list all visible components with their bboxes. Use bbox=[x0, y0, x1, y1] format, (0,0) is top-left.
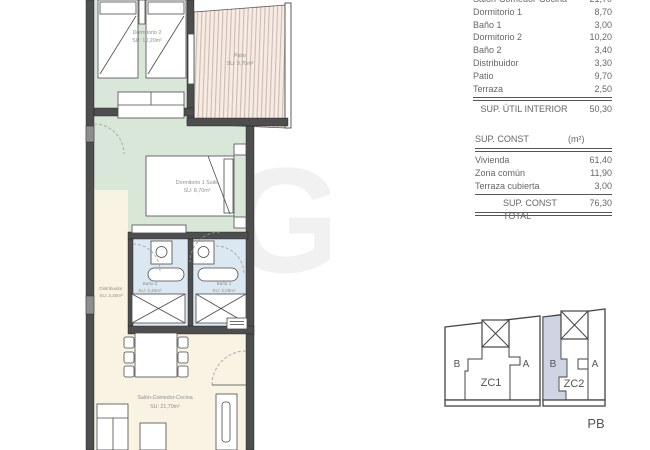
table-row: Vivienda61,40 bbox=[475, 154, 612, 167]
sink bbox=[151, 241, 172, 264]
zone-label-zc2: ZC2 bbox=[564, 378, 585, 390]
sofa bbox=[97, 404, 128, 450]
floor-level-label: PB bbox=[587, 416, 604, 431]
table-row: Patio9,70 bbox=[473, 70, 612, 83]
table-row: Dormitorio 210,20 bbox=[473, 31, 612, 44]
sup-util-total-row: SUP. ÚTIL INTERIOR 50,30 bbox=[473, 103, 612, 116]
table-row: Terraza cubierta3,00 bbox=[475, 180, 612, 193]
room-label-salon: Salón-Comedor-Cocina bbox=[137, 395, 192, 401]
room-label-dormitorio1: Dormitorio 1 Suite bbox=[176, 180, 218, 186]
nightstand bbox=[234, 217, 246, 228]
svg-text:SU: 8,70m²: SU: 8,70m² bbox=[184, 188, 211, 194]
unit-label-b1: B bbox=[454, 359, 461, 370]
room-label-distribuidor: Distribuidor bbox=[99, 286, 123, 291]
sup-util-table: Salón-Comedor-Cocina 21,70 Dormitorio 18… bbox=[473, 0, 612, 116]
toilet bbox=[148, 268, 184, 281]
shower bbox=[132, 294, 185, 323]
wardrobe bbox=[118, 92, 184, 118]
divider bbox=[475, 212, 612, 216]
room-label-bano1: Baño 1 bbox=[217, 281, 232, 286]
table-row: Dormitorio 18,70 bbox=[473, 6, 612, 19]
nightstand bbox=[234, 144, 246, 155]
key-plan-block-zc2: B A ZC2 bbox=[543, 309, 605, 406]
elevator-core-icon bbox=[482, 320, 509, 347]
cabinet bbox=[132, 225, 186, 233]
coffee-table bbox=[140, 423, 166, 450]
divider bbox=[475, 194, 612, 195]
table-header: SUP. CONST (m²) bbox=[475, 132, 612, 146]
svg-text:SU: 9,70m²: SU: 9,70m² bbox=[227, 61, 254, 67]
unit-label: (m²) bbox=[568, 132, 585, 146]
toilet bbox=[198, 268, 238, 281]
unit-label-a1: A bbox=[523, 359, 530, 370]
dining-table bbox=[124, 333, 188, 377]
table-row: Terraza2,50 bbox=[473, 83, 612, 96]
bed-double bbox=[146, 156, 234, 216]
room-label-bano2: Baño 2 bbox=[143, 281, 158, 286]
room-label-patio: Patio bbox=[234, 53, 246, 59]
table-row: Distribuidor3,30 bbox=[473, 57, 612, 70]
svg-text:SU: 10,20m²: SU: 10,20m² bbox=[132, 38, 162, 44]
divider bbox=[475, 148, 612, 152]
sink bbox=[193, 241, 214, 264]
svg-text:SU: 21,70m²: SU: 21,70m² bbox=[150, 404, 180, 410]
unit-label-b2: B bbox=[550, 359, 557, 370]
svg-text:SU: 3,00m²: SU: 3,00m² bbox=[212, 288, 236, 293]
svg-text:SU: 3,30m²: SU: 3,30m² bbox=[99, 293, 123, 298]
kitchen-counter bbox=[216, 394, 237, 450]
patio-window bbox=[188, 34, 194, 84]
ac-unit bbox=[227, 318, 247, 329]
key-plan-block-zc1: B A ZC1 bbox=[445, 316, 540, 406]
table-row: Baño 23,40 bbox=[473, 44, 612, 57]
unit-label-a2: A bbox=[592, 359, 599, 370]
svg-text:SU: 3,40m²: SU: 3,40m² bbox=[138, 288, 162, 293]
patio-outer-wall bbox=[285, 3, 291, 128]
sup-const-total-row: SUP. CONST TOTAL 76,30 bbox=[475, 197, 612, 210]
sup-const-table: SUP. CONST (m²) Vivienda61,40 Zona común… bbox=[475, 132, 612, 218]
room-label-dormitorio2: Dormitorio 2 bbox=[133, 30, 162, 36]
key-plan: B A ZC1 B A ZC2 PB bbox=[430, 297, 650, 442]
floor-plan: SG bbox=[0, 0, 330, 450]
nightstand bbox=[139, 0, 145, 24]
elevator-core-icon bbox=[561, 311, 588, 339]
table-row: Zona común11,90 bbox=[475, 167, 612, 180]
table-row: Baño 13,00 bbox=[473, 19, 612, 32]
zone-label-zc1: ZC1 bbox=[481, 377, 502, 389]
divider bbox=[473, 97, 612, 101]
